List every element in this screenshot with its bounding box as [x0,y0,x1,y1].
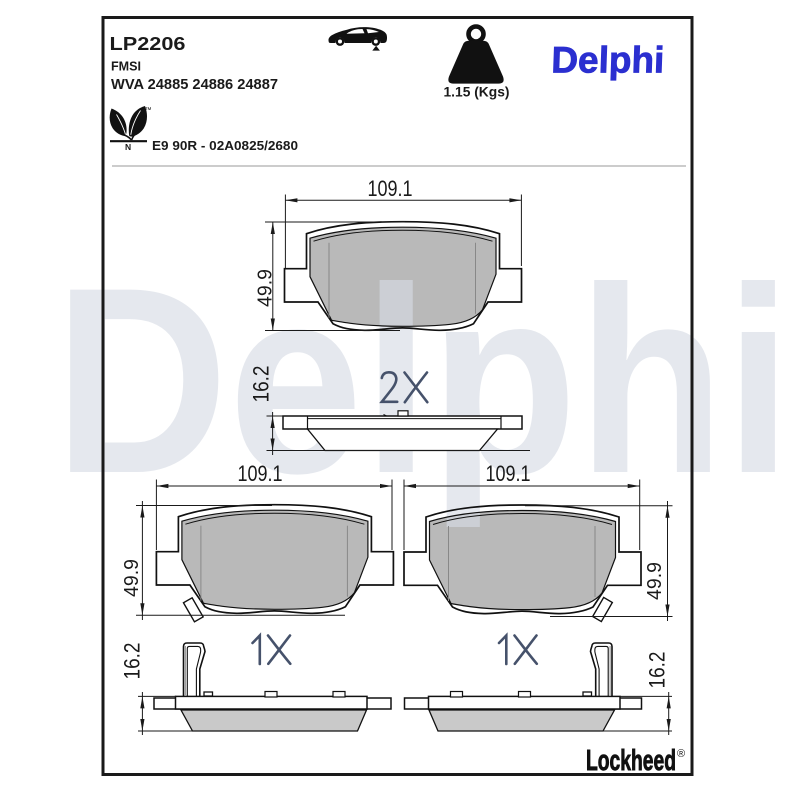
svg-text:Lockheed: Lockheed [586,745,676,777]
svg-text:™: ™ [145,107,152,114]
svg-text:LP2206: LP2206 [110,34,186,54]
svg-text:16.2: 16.2 [645,652,670,689]
svg-text:E9 90R - 02A0825/2680: E9 90R - 02A0825/2680 [152,139,298,153]
svg-text:1.15 (Kgs): 1.15 (Kgs) [444,85,510,100]
svg-text:49.9: 49.9 [121,559,143,597]
svg-text:®: ® [677,748,685,760]
svg-text:N: N [125,142,131,152]
svg-text:16.2: 16.2 [120,643,145,680]
svg-text:49.9: 49.9 [255,269,277,307]
svg-text:109.1: 109.1 [238,461,283,486]
svg-text:109.1: 109.1 [368,176,413,201]
svg-text:49.9: 49.9 [644,562,666,600]
svg-text:Delphi: Delphi [551,39,665,81]
svg-text:109.1: 109.1 [486,461,531,486]
svg-text:WVA 24885 24886 24887: WVA 24885 24886 24887 [111,76,278,93]
svg-text:FMSI: FMSI [111,60,141,74]
svg-text:16.2: 16.2 [249,366,274,403]
